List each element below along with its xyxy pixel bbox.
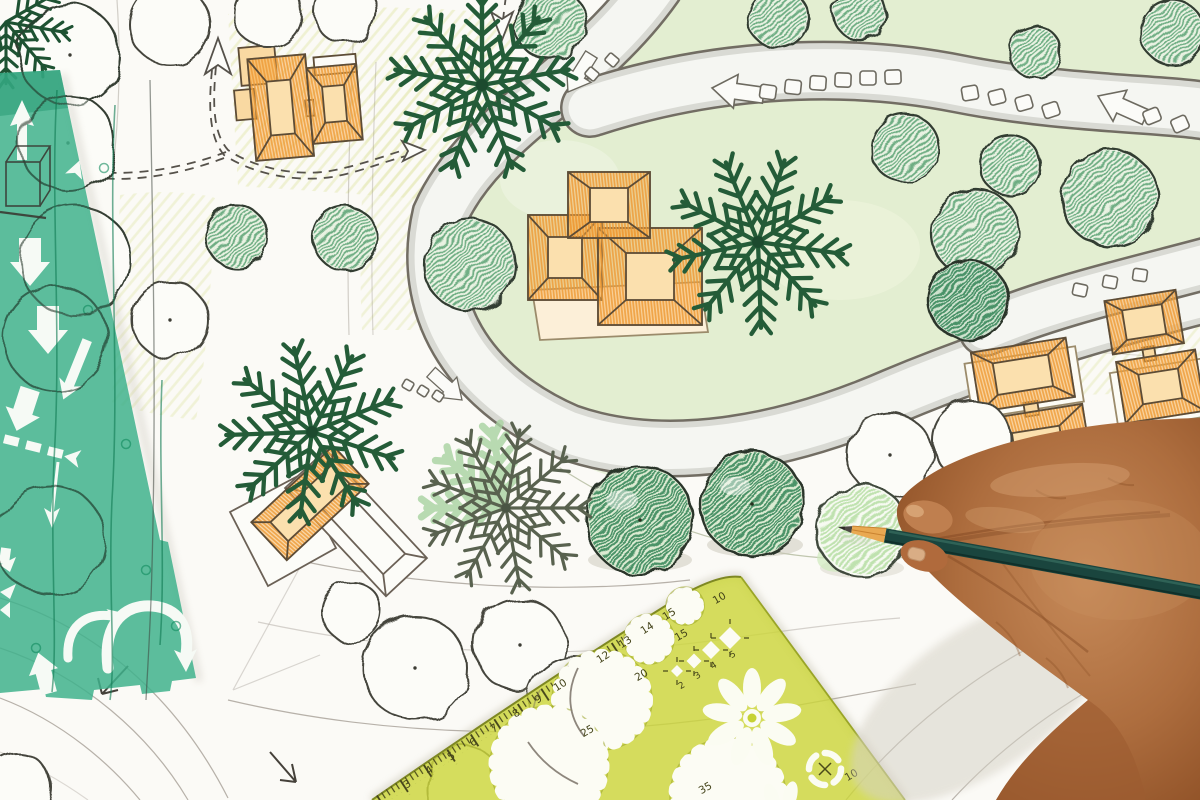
site-plan-scene: 10 15 20 25 35 2 3 4 5 10 3 4 5 6 7 8 9 … bbox=[0, 0, 1200, 800]
hip-roof-building bbox=[1116, 349, 1200, 423]
hip-roof-building bbox=[247, 54, 314, 161]
hip-roof-building bbox=[1104, 290, 1184, 355]
hip-roof-building bbox=[598, 228, 702, 325]
hip-roof-building bbox=[306, 64, 362, 144]
photo-of-site-plan-drawing: 10 15 20 25 35 2 3 4 5 10 3 4 5 6 7 8 9 … bbox=[0, 0, 1200, 800]
hip-roof-building bbox=[568, 172, 650, 238]
